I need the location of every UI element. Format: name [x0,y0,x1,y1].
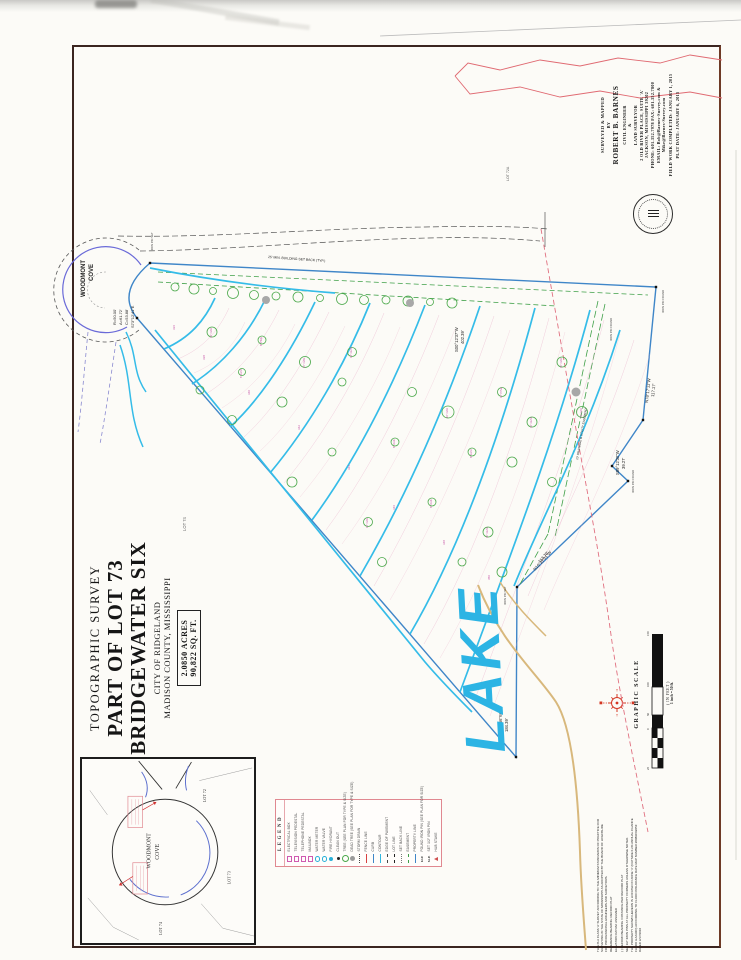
map-annotation: 6" ELM [239,370,243,378]
legend-item: WATER VALVE [322,802,328,864]
fire-hydrant-icon [329,857,333,861]
legend-item-label: SET BACK LINE [399,826,403,852]
tree-symbol [317,295,324,302]
inset-street-name: WOODMONT [146,833,152,869]
legend-box: LEGEND ELECTRICAL BOXTELEVISION PEDESTAL… [275,799,442,867]
map-annotation: 10" OAK [302,358,306,368]
surveyor-email: Mike@Barnes-Survey.com [661,54,667,196]
iron-pin-symbol [627,480,629,482]
seal-center [648,210,659,219]
map-annotation: 8" OAK [392,439,396,448]
legend-item: EDGE OF PAVEMENT [385,802,391,864]
iron-pin-symbol [136,317,138,319]
iron-pin-note: SET 1/2" IRON PINS AT ALL PROPERTY CORNE… [626,817,630,952]
graphic-scale-caption: ( IN FEET ) 1 inch = 50 ft. [666,648,678,738]
map-annotation: LAKE [445,583,517,755]
tree-symbol [378,558,387,567]
lot-line-icon [394,855,395,864]
map-annotation: 344 [347,465,351,470]
legend-item: PROPERTY LINE [413,802,419,864]
map-annotation: 16" OAK [445,408,449,418]
surveyor-seal-icon [633,194,673,234]
benchmark-target-icon [600,689,635,717]
tree-symbol [272,292,280,300]
map-annotation: LOT 74 [182,516,187,531]
legend-item: ELECTRICAL BOX [287,802,293,864]
set-back-line-icon [401,855,402,864]
map-annotation: 25' MIN. BUILDING SET BACK (TYP.) [268,255,326,263]
legend-item: CURB [371,802,377,864]
tree-symbol [427,299,434,306]
tree-symbol [210,288,217,295]
legend-item: CLEAN OUT [336,802,342,864]
tree-symbol [337,294,348,305]
dead-tree-symbol [572,388,581,397]
contour-minor [244,312,329,437]
iron-pin-symbol [149,262,151,264]
map-path [380,20,741,36]
map-annotation: C=53.88' [124,309,129,325]
legend-item-label: TELEVISION PEDESTAL [294,813,298,852]
map-path [150,268,335,293]
map-annotation: 14" GUM [349,347,353,358]
map-annotation: 10" PINE [499,387,503,398]
legend-item-label: WATER VALVE [322,828,326,852]
tree-symbol [458,558,466,566]
map-annotation: S73°12'41"E [130,305,135,328]
map-annotation: IRON PIN FOUND [631,470,635,493]
tree-symbol [447,298,457,308]
map-annotation: 350 [487,575,491,580]
record-bearing-note: ( ) RECORD BEARING / DISTANCE PER RECORD… [621,817,625,952]
survey-class-note: THIS IS A CLASS 'A' SURVEY ACCORDING TO … [597,817,608,952]
iron-pin-symbol [515,756,517,758]
legend-item: STORM DRAIN [357,802,363,864]
legend-item-label: LOT LINE [392,836,396,851]
legend-item: TELEPHONE PEDESTAL [301,802,307,864]
notes-block: THIS IS A CLASS 'A' SURVEY ACCORDING TO … [597,817,662,952]
dead-tree-symbol [262,296,270,304]
title-block: TOPOGRAPHIC SURVEY PART OF LOT 73 BRIDGE… [88,534,210,762]
mailbox-icon [308,856,314,862]
acreage-box: 2.0850 ACRES 90,822 SQ. FT. [177,610,201,685]
legend-item-label: DEAD TREE (SEE PLAN FOR TYPE & SIZE) [350,782,354,852]
scale-tick: 25 [646,767,650,771]
legend-item-label: TELEPHONE PEDESTAL [301,812,305,851]
contour-minor [326,315,439,530]
legend-item: F.I.P.FOUND IRON PIN (SEE PLAN FOR SIZE) [420,802,426,864]
tree-symbol [277,397,287,407]
red-scan-mark [455,55,722,98]
tree-symbol [250,291,259,300]
scanned-survey-page: 150 100 50 0 25 WOODMONTCOVER=50.00'A=61… [0,0,741,960]
contour-minor [260,326,345,451]
map-path [360,306,480,576]
legend-item: TREE (SEE PLAN FOR TYPE & SIZE) [343,802,349,864]
legend-item: SET BACK LINE [399,802,405,864]
map-annotation: 14" OAK [579,408,583,418]
legend-item-label: FOUND IRON PIN (SEE PLAN FOR SIZE) [420,786,424,852]
flood-zone-note: THE PROPERTY SHOWN HEREON IS LOCATED IN … [631,817,642,952]
map-path [100,342,116,444]
map-annotation: COVE [89,264,95,281]
surveyor-name: ROBERT B. BARNES [612,54,622,196]
map-path [192,300,265,384]
curb-icon [373,855,374,864]
legend-items: ELECTRICAL BOXTELEVISION PEDESTALTELEPHO… [285,800,441,866]
iron-pin-symbol [655,286,657,288]
map-annotation: IRON PIN FOUND [609,318,613,341]
survey-type-title: TOPOGRAPHIC SURVEY [88,534,103,762]
iron-pin-symbol [642,419,644,421]
telephone-pedestal-icon [301,856,307,862]
map-annotation: 12" OAK [209,328,213,338]
map-path [548,301,598,534]
tree-symbol [189,284,199,294]
county-line: MADISON COUNTY, MISSISSIPPI [162,534,172,762]
legend-item-label: FENCE LINE [364,831,368,851]
inset-lot-label: LOT 73 [227,871,232,884]
legend-item-label: FIRE HYDRANT [329,826,333,851]
tree-symbol [548,478,557,487]
legend-item-label: EASEMENT [406,833,410,852]
map-annotation: 340 [247,390,251,395]
scale-ratio-note: 1 inch = 50 ft. [670,648,674,738]
set-1-2-iron-pin-icon: S.I.P. [427,856,431,862]
contour-minor [342,329,455,544]
map-annotation: R=50.00' [112,309,117,325]
contour-minor [206,310,279,394]
legend-item: LOT LINE [392,802,398,864]
map-annotation: 342 [297,425,301,430]
elevation-datum-note: ELEVATION DATUM: ASSUMED [615,817,619,952]
inset-lot-label: LOT 74 [158,922,163,935]
map-annotation: 117.17' [650,383,656,397]
map-annotation: WOODMONT [81,260,87,297]
city-line: CITY OF RIDGELAND [152,534,162,762]
dead-tree-see-plan-for-type-size-icon [350,857,355,862]
scale-tick: 50 [646,713,650,717]
legend-item-label: SET 1/2" IRON PIN [427,821,431,851]
subdivision-title: BRIDGEWATER SIX [127,534,150,762]
map-annotation: 10" OAK [559,358,563,368]
surveyor-info-block: SURVEYED & MAPPED BY ROBERT B. BARNES CI… [600,54,666,196]
map-path [555,304,605,537]
inset-curb-lines [130,766,210,897]
inset-street-name: COVE [155,843,161,859]
fence-line-icon [366,855,367,864]
water-valve-icon [322,856,328,862]
legend-item-label: WATER METER [315,827,319,852]
legend-item: WATER METER [315,802,321,864]
graphic-scale-bar: 150 100 50 0 25 [646,631,663,770]
map-path [118,226,548,236]
tree-symbol [497,567,507,577]
iron-pin-symbol [516,586,518,588]
storm-drain-icon [359,855,360,864]
acreage-value: 2.0850 ACRES [180,619,189,676]
map-annotation: 8" ELM [469,450,473,458]
map-annotation: A=61.72' [118,309,123,325]
contour-icon [380,855,381,864]
legend-title: LEGEND [276,800,285,866]
reference-bearing-note: REFERENCE BEARING: RECORD PLAT [610,817,614,952]
map-annotation: LOT 72A [506,166,510,181]
map-path [164,298,215,349]
map-annotation: 348 [442,540,446,545]
legend-item-label: MAILBOX [308,836,312,851]
tree-symbol [382,296,390,304]
clean-out-icon [337,858,340,861]
water-meter-icon [315,856,321,862]
legend-item-label: HUB STAKE [434,832,438,851]
tree-symbol [408,388,417,397]
property-line-icon [415,855,416,864]
television-pedestal-icon [294,856,300,862]
hub-stake-icon [434,857,438,861]
legend-item: FIRE HYDRANT [329,802,335,864]
tree-symbol [507,457,517,467]
inset-annotation-box [119,863,147,894]
map-annotation: 336 [172,325,176,330]
map-annotation: S89°12'30"W [615,450,620,475]
edge-of-pavement-icon [387,855,388,864]
electrical-box-icon [287,856,293,862]
legend-item-label: TREE (SEE PLAN FOR TYPE & SIZE) [343,792,347,852]
legend-item-label: EDGE OF PAVEMENT [385,817,389,852]
map-annotation: 402.39' [460,330,465,344]
map-annotation: IRON PIN SET [150,232,154,251]
tree-symbol [338,378,346,386]
scale-tick: 100 [646,682,650,687]
map-path [78,332,88,432]
iron-pin-symbol [611,465,613,467]
legend-item-label: CLEAN OUT [336,832,340,852]
tree-symbol [293,292,303,302]
legend-item: EASEMENT [406,802,412,864]
map-annotation: 39.27' [621,458,626,469]
legend-item-label: CURB [371,842,375,852]
legend-item-label: ELECTRICAL BOX [287,822,291,851]
legend-item-label: PROPERTY LINE [413,824,417,851]
map-annotation: 8" PINE [259,337,263,346]
contour-minor [194,322,245,373]
contour-minor [390,330,510,600]
scale-tick: 0 [646,728,650,730]
legend-item: FENCE LINE [364,802,370,864]
map-path [158,282,556,306]
legend-item-label: CONTOUR [378,834,382,851]
vicinity-inset-map: WOODMONT COVE LOT 72 LOT 73 LOT 74 [80,757,256,945]
map-annotation: S00°12'37"W [454,327,459,352]
graphic-scale-title: GRAPHIC SCALE [634,646,644,742]
tree-see-plan-for-type-size-icon [342,856,349,863]
map-path [120,345,143,447]
legend-item-label: STORM DRAIN [357,828,361,852]
map-path [54,238,139,342]
field-work-date: FIELD WORK COMPLETED: JANUARY 1, 2015 [668,54,674,196]
map-path [140,238,540,251]
map-path [270,303,370,473]
lot-title: PART OF LOT 73 [104,534,127,762]
map-path [514,330,620,586]
legend-item: S.I.P.SET 1/2" IRON PIN [427,802,433,864]
square-feet-value: 90,822 SQ. FT. [189,619,198,676]
tree-symbol [228,288,239,299]
tree-symbol [171,283,179,291]
legend-item: DEAD TREE (SEE PLAN FOR TYPE & SIZE) [350,802,356,864]
tree-symbol [287,477,297,487]
map-annotation: 12" OAK [365,518,369,528]
map-annotation: 346 [392,505,396,510]
plat-date: PLAT DATE: JANUARY 6, 2015 [675,54,681,196]
map-annotation: 12" GUM [529,417,533,428]
easement-icon [408,855,409,864]
legend-item: HUB STAKE [434,802,440,864]
legend-item: TELEVISION PEDESTAL [294,802,300,864]
found-iron-pin-see-plan-for-size-icon: F.I.P. [420,856,424,862]
map-annotation: 8" OAK [429,499,433,508]
scale-tick: 150 [646,631,650,636]
map-annotation: 338 [202,355,206,360]
dead-tree-symbol [406,299,414,307]
contour-minor [284,313,384,483]
map-annotation: 10" GUM [485,527,489,538]
contour-minor [178,308,229,359]
legend-item: CONTOUR [378,802,384,864]
legend-item: MAILBOX [308,802,314,864]
inset-lot-label: LOT 72 [202,789,207,802]
tree-symbol [360,296,369,305]
map-annotation: IRON PIN FOUND [661,290,665,313]
map-path [312,305,425,520]
